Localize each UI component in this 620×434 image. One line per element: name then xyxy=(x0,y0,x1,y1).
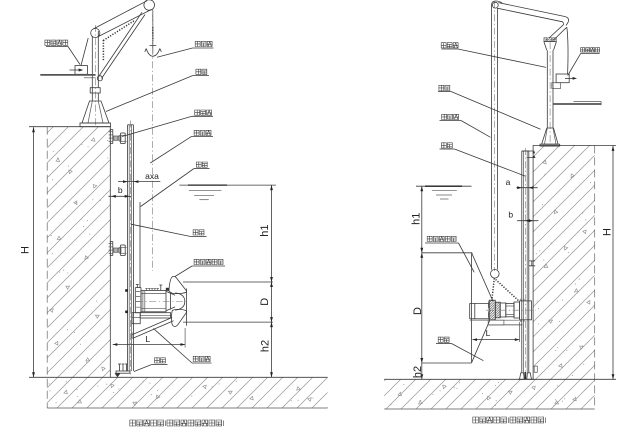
svg-text:a: a xyxy=(506,177,511,187)
svg-text:h1: h1 xyxy=(410,213,422,225)
svg-text:h2: h2 xyxy=(412,366,424,378)
svg-text:D: D xyxy=(412,307,424,315)
svg-text:H: H xyxy=(19,246,31,254)
svg-text:h2: h2 xyxy=(259,340,271,352)
svg-text:b: b xyxy=(118,185,123,195)
svg-text:H: H xyxy=(601,228,613,236)
svg-text:axa: axa xyxy=(145,171,159,181)
svg-text:h1: h1 xyxy=(259,224,271,236)
svg-text:L: L xyxy=(486,328,491,338)
svg-text:L: L xyxy=(145,334,150,344)
svg-text:b: b xyxy=(508,209,513,219)
svg-text:D: D xyxy=(259,298,271,306)
